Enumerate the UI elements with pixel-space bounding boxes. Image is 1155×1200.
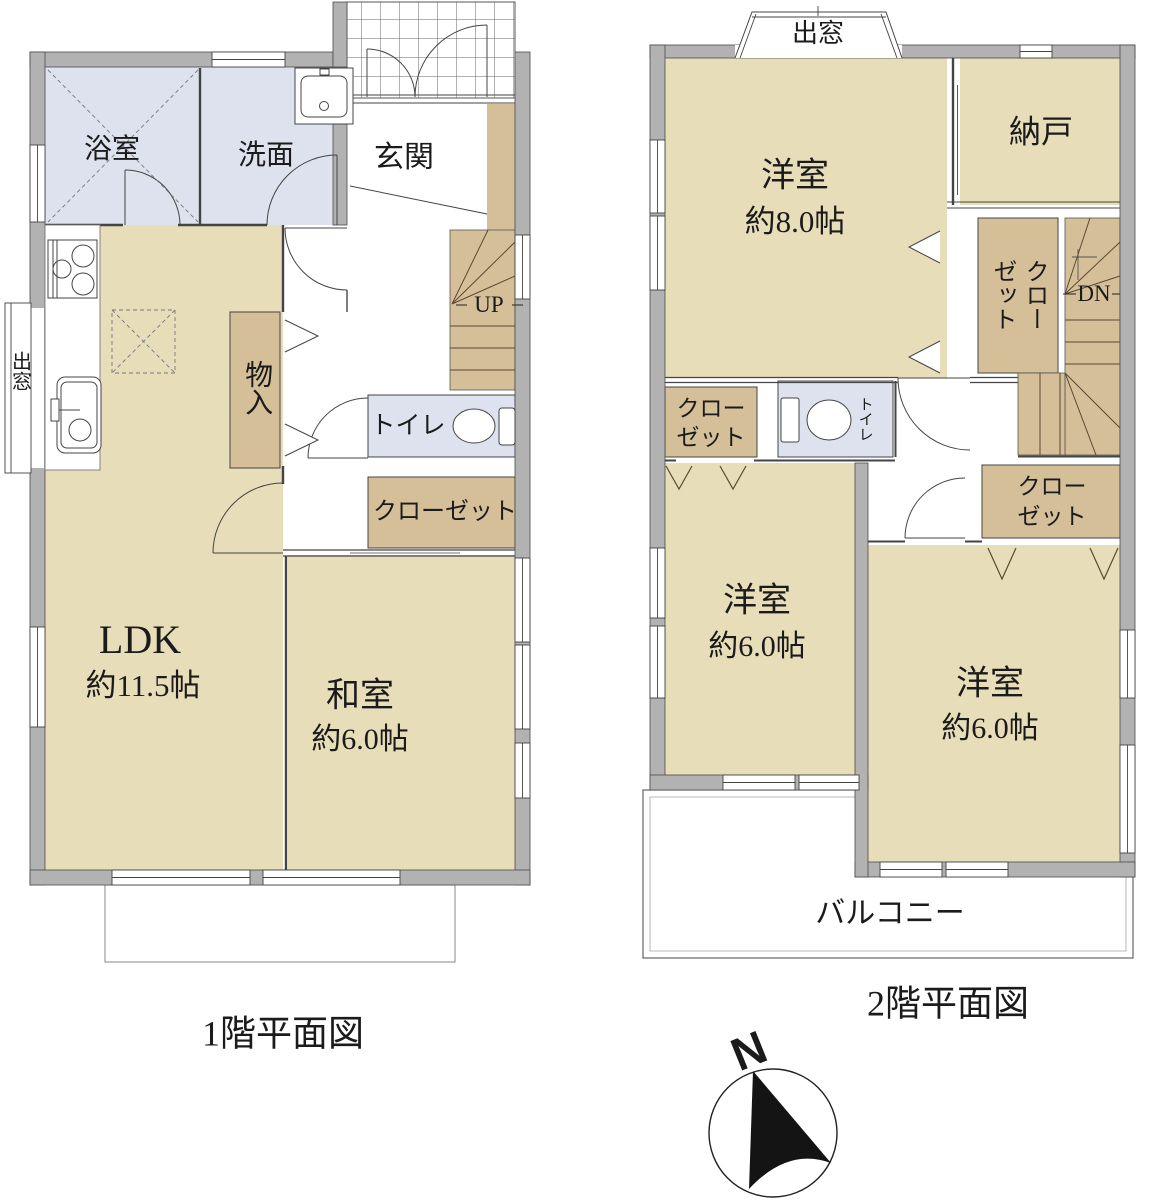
japanese-room: [288, 555, 515, 870]
stairs-down-label: DN: [1077, 281, 1110, 307]
entrance-label: 玄関: [374, 141, 434, 176]
bay-window-2f-label: 出窓: [792, 19, 844, 49]
japanese-room-name-label: 和室: [326, 676, 394, 715]
bedroom8-size-label: 約8.0帖: [745, 204, 846, 240]
floor1-rooms: [45, 67, 515, 870]
bedroom6-left-size-label: 約6.0帖: [708, 630, 806, 665]
bedroom6-right-size-label: 約6.0帖: [941, 712, 1039, 747]
japanese-room-size-label: 約6.0帖: [311, 723, 409, 758]
stair-landing: [487, 104, 515, 230]
closet-2f-left-line1: クロー: [677, 396, 746, 422]
closet-2f-right-line1: クロー: [1018, 474, 1087, 500]
floor2-door-arcs: [898, 378, 970, 538]
porch-tile-grid: [347, 2, 515, 98]
closet-stairside-label: クローゼット: [986, 253, 1050, 337]
closet-1f-label: クローゼット: [373, 499, 517, 527]
toilet-icon-2f: [781, 398, 851, 442]
storage-label: 物入: [240, 360, 272, 416]
toilet-2f-label: トイレ: [855, 397, 872, 442]
storeroom-label: 納戸: [1009, 114, 1073, 151]
closet-2f-right-line2: ゼット: [1018, 504, 1087, 530]
bedroom6-right-name-label: 洋室: [956, 664, 1024, 703]
washbasin-icon: [295, 68, 353, 124]
balcony-label: バルコニー: [815, 897, 964, 932]
bay-window-1f-label: 出窓: [8, 351, 31, 391]
compass: [709, 1069, 837, 1197]
stove-icon: [48, 240, 97, 298]
stairs-down-turn: [1018, 373, 1065, 455]
ldk-name-label: LDK: [99, 617, 181, 663]
terrace: [105, 885, 455, 962]
bedroom6-left-name-label: 洋室: [723, 581, 791, 620]
washroom-label: 洗面: [238, 140, 294, 172]
stairs-up-label: UP: [474, 292, 503, 318]
ldk-size-label: 約11.5帖: [85, 668, 200, 704]
toilet-1f-label: トイレ: [370, 413, 445, 442]
sink-icon: [51, 377, 101, 453]
floorplan-canvas: 浴室 洗面 玄関 LDK 約11.5帖 和室 約6.0帖 トイレ クローゼット …: [0, 0, 1155, 1200]
floor2-title: 2階平面図: [867, 983, 1029, 1024]
closet-2f-left-line2: ゼット: [677, 425, 746, 451]
entrance-step-line: [350, 186, 487, 214]
toilet-icon-1f: [453, 408, 515, 445]
floor1-title: 1階平面図: [202, 1013, 364, 1054]
folding-door-marks: [285, 320, 318, 456]
bath-label: 浴室: [84, 134, 140, 166]
bedroom8-name-label: 洋室: [761, 156, 829, 195]
